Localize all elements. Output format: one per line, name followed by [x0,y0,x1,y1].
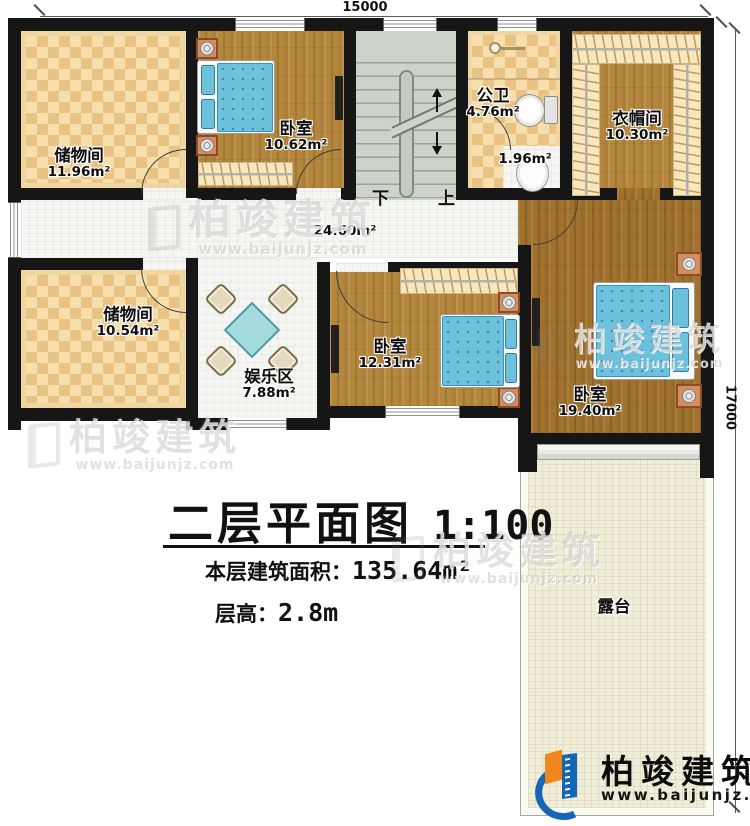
floor-cloak-doorway [617,188,660,200]
room-area: 24.60m² [314,224,377,239]
wall-segment [8,408,198,421]
tv [335,76,343,120]
room-name: 储物间 [103,306,153,324]
floor-height-row: 层高： 2.8m [215,598,338,628]
logo-orange-block [545,750,562,785]
logo-building-icon [535,750,591,808]
nightstand [196,135,218,156]
room-area: 4.76m² [466,105,519,120]
window [8,202,21,258]
sliding-door [537,444,700,460]
room-area: 10.30m² [606,128,669,143]
floor-bedroomc-doorway [518,200,531,245]
shower-arm [501,47,525,50]
room-label-play-area: 娱乐区 7.88m² [209,368,329,401]
room-name: 卧室 [374,338,407,356]
wall-segment [700,445,714,478]
wall-segment [341,188,356,200]
shower-head-icon [489,42,501,54]
room-name: 娱乐区 [244,368,294,386]
floor-height-value: 2.8m [278,598,338,627]
room-area: 19.40m² [559,404,622,419]
shower-divider [468,78,560,80]
bed-quilt [442,316,504,386]
drawing-title-text: 二层平面图 [168,487,413,552]
wall-segment [701,18,714,445]
room-area: 7.88m² [242,386,295,401]
wall-segment [21,258,143,270]
floor-height-label: 层高： [215,598,278,628]
wall-segment [186,258,198,430]
nightstand [498,292,520,313]
wall-segment [456,188,572,200]
pillow [672,332,689,372]
room-area: 11.96m² [48,165,111,180]
closet-rail [400,268,518,294]
wall-segment [344,31,356,200]
floor-plan: 15000 17000 下 上 储物间 11.96m² 卧室 10.62m² 公… [0,0,750,826]
room-label-bedroom-c: 卧室 19.40m² [530,386,650,419]
floor-area-row: 本层建筑面积： 135.64m² [205,556,472,586]
room-label-storage-bottom-left: 储物间 10.54m² [68,306,188,339]
window [385,406,460,418]
tv [532,298,540,346]
bed-quilt [596,285,670,377]
logo-blue-tower [562,753,577,799]
closet-rail [198,162,293,186]
nightstand [676,384,702,408]
room-name: 卧室 [574,386,607,404]
pillow [505,353,517,383]
room-label-terrace: 露台 [554,598,674,616]
pillow [672,288,689,328]
wall-segment [8,18,714,31]
floor-area-value: 135.64m² [352,556,472,585]
room-area: 1.96m² [498,152,551,167]
room-name: 公卫 [477,87,510,105]
room-label-bedroom-a: 卧室 10.62m² [236,120,356,153]
nightstand [676,252,702,276]
stairs-down-label: 下 [372,184,389,209]
drawing-scale: 1:100 [433,503,553,549]
wall-segment [560,31,572,200]
room-label-cloakroom: 衣帽间 10.30m² [577,110,697,143]
nightstand [498,387,520,408]
dimension-top: 15000 [330,0,400,15]
room-label-wash-area: 1.96m² [465,152,585,167]
room-name: 卧室 [280,120,313,138]
wall-segment [8,188,143,200]
dimension-line-top [40,16,708,17]
stairs-up-label: 上 [438,184,455,209]
window [235,18,305,31]
wall-segment [518,445,537,472]
window [497,18,537,31]
nightstand [196,38,218,59]
room-area: 12.31m² [359,356,422,371]
dimension-tick [699,4,711,16]
floor-area-label: 本层建筑面积： [205,556,352,586]
wall-segment [317,262,330,430]
pillow [201,99,215,129]
logo-brand: 柏竣建筑 [601,755,750,789]
watermark-url: www.baijunjz.com [76,458,235,473]
room-area: 10.54m² [97,324,160,339]
room-area: 10.62m² [265,138,328,153]
room-label-storage-top-left: 储物间 11.96m² [19,147,139,180]
pillow [505,319,517,349]
stair-arrow-stem [436,132,438,148]
wall-segment [198,188,296,200]
dimension-right: 17000 [723,378,738,438]
closet-rail [572,34,701,64]
room-name: 储物间 [54,147,104,165]
drawing-title: 二层平面图 1:100 [168,487,553,552]
dimension-tick [715,16,727,28]
watermark-building-icon [28,422,60,469]
window [227,418,287,430]
company-logo: 柏竣建筑 www.baijunjz.com [535,750,750,808]
pillow [201,65,215,95]
logo-url: www.baijunjz.com [601,788,750,803]
dimension-tick [33,4,45,16]
title-underline [163,545,485,548]
room-label-bedroom-b: 卧室 12.31m² [330,338,450,371]
window [383,18,437,31]
room-name: 露台 [598,598,631,616]
room-label-bathroom: 公卫 4.76m² [433,87,553,120]
room-name: 衣帽间 [612,110,662,128]
room-label-hallway: 24.60m² [285,224,405,239]
